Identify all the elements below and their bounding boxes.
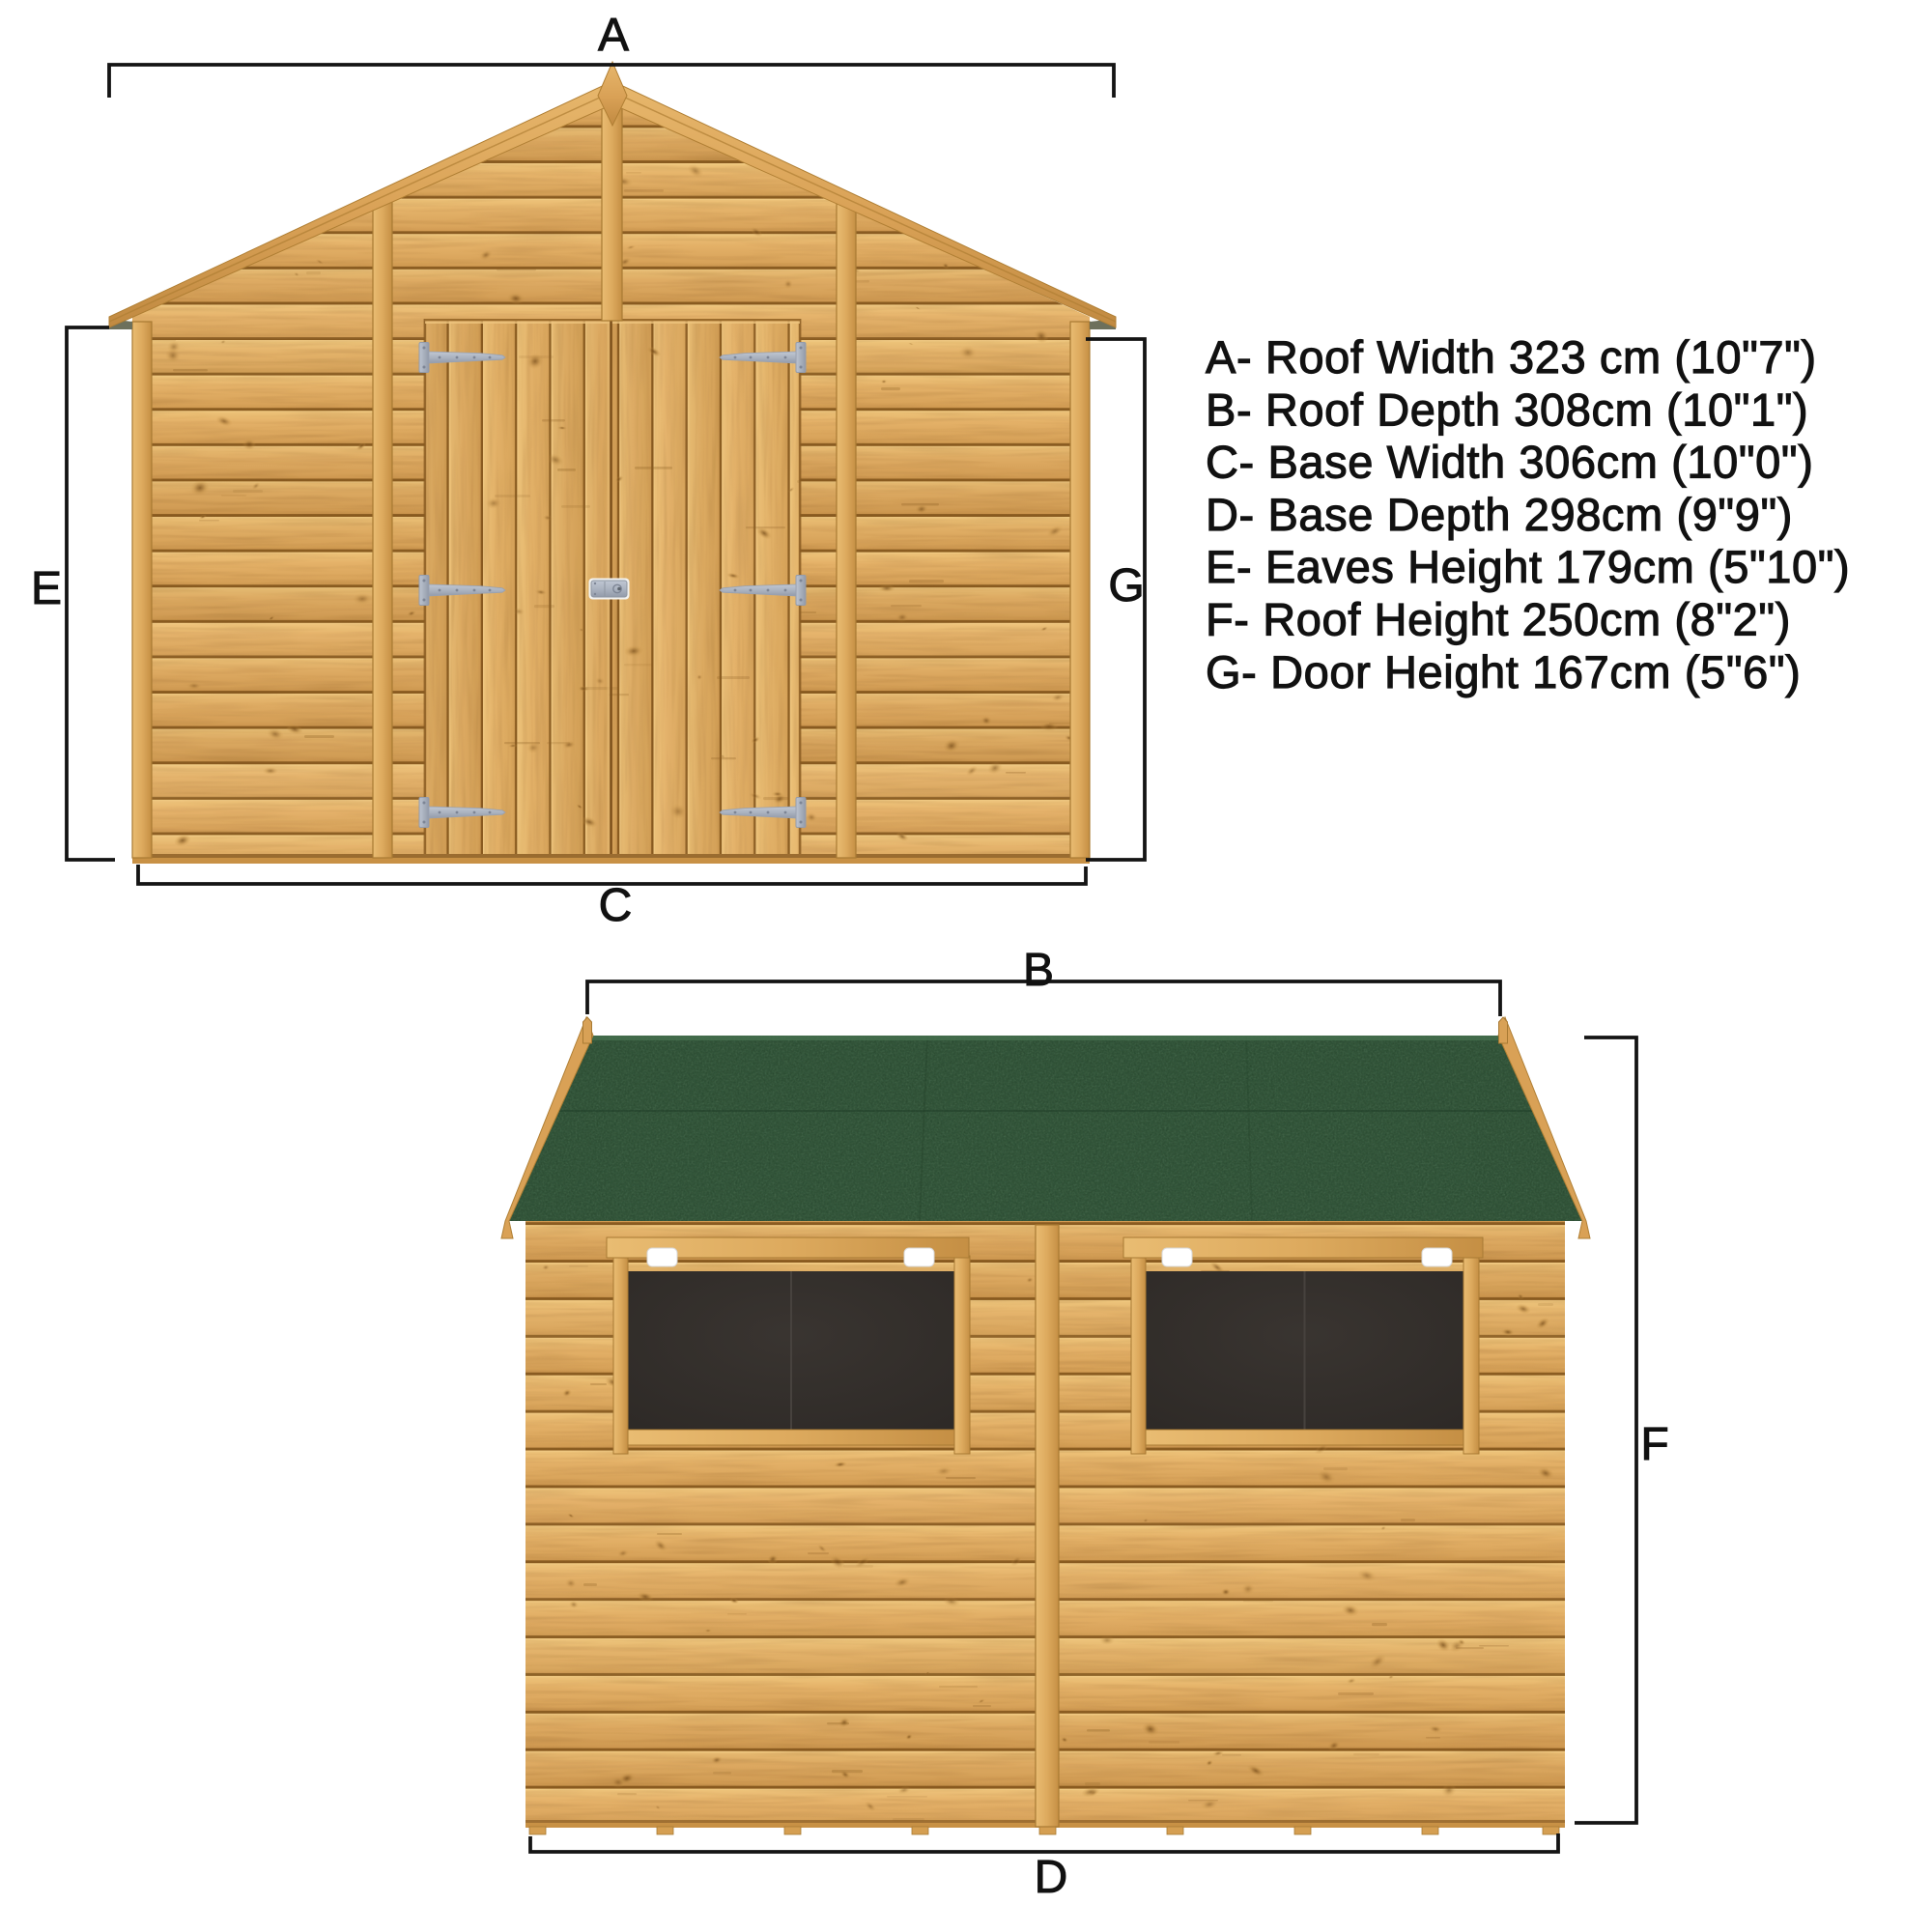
- svg-text:B- Roof Depth 308cm (10"1"): B- Roof Depth 308cm (10"1"): [1206, 384, 1808, 435]
- svg-text:E: E: [31, 563, 62, 614]
- svg-text:G: G: [1108, 560, 1144, 611]
- svg-text:F: F: [1640, 1419, 1668, 1470]
- svg-text:G- Door Height 167cm (5"6"): G- Door Height 167cm (5"6"): [1206, 646, 1801, 697]
- svg-text:A: A: [598, 10, 629, 61]
- svg-text:E- Eaves Height 179cm (5"10"): E- Eaves Height 179cm (5"10"): [1206, 541, 1850, 592]
- svg-text:F- Roof Height 250cm (8"2"): F- Roof Height 250cm (8"2"): [1206, 594, 1791, 645]
- svg-text:A- Roof Width 323 cm (10"7"): A- Roof Width 323 cm (10"7"): [1206, 331, 1817, 383]
- svg-text:B: B: [1023, 945, 1054, 996]
- svg-text:D- Base Depth 298cm (9"9"): D- Base Depth 298cm (9"9"): [1206, 489, 1793, 540]
- svg-text:C: C: [599, 880, 633, 931]
- svg-text:D: D: [1035, 1852, 1068, 1903]
- svg-text:C- Base Width 306cm (10"0"): C- Base Width 306cm (10"0"): [1206, 437, 1813, 488]
